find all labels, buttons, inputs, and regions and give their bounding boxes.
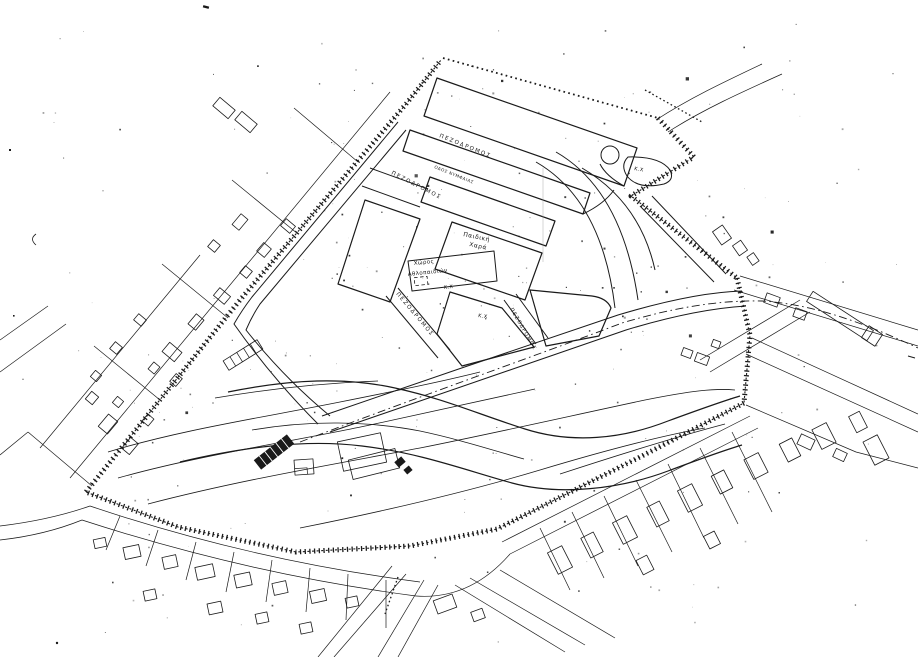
building-footprint [232, 214, 248, 231]
noise-speck [613, 287, 615, 289]
noise-speck [564, 196, 566, 198]
noise-speck [310, 355, 311, 356]
noise-speck [666, 430, 667, 431]
noise-speck [566, 287, 567, 288]
noise-speck [188, 547, 189, 548]
noise-speck [585, 197, 586, 198]
roundabout-circle [601, 146, 619, 164]
noise-speck [133, 600, 135, 602]
noise-speck [695, 378, 696, 379]
noise-speck [743, 47, 745, 49]
noise-speck [624, 317, 626, 319]
noise-speck [602, 287, 604, 289]
building-footprint [849, 411, 868, 432]
noise-speck [492, 92, 494, 94]
noise-speck [112, 582, 114, 584]
open-space-label-sports: Κ.Χ [444, 284, 454, 291]
noise-speck [645, 438, 646, 439]
noise-speck [429, 289, 430, 290]
building-footprint [213, 97, 235, 118]
noise-speck [498, 641, 499, 642]
building-footprint [110, 342, 123, 355]
noise-speck [765, 198, 766, 199]
existing-fabric-west [0, 92, 390, 486]
noise-speck [464, 512, 465, 513]
plan-map-svg: ΠΕΖΟΔΡΟΜΟΣ ΟΔΟΣ ΝΥΜΦΑΙΑΣ ΠΕΖΟΔΡΟΜΟΣ ΠΕΖΟ… [0, 0, 918, 657]
curved-street-edge [536, 162, 615, 308]
noise-speck [461, 254, 463, 256]
building-footprint [188, 314, 204, 330]
noise-speck [896, 264, 897, 265]
noise-speck [578, 590, 580, 592]
noise-speck [614, 256, 615, 257]
noise-speck [101, 357, 102, 358]
noise-speck [526, 282, 527, 283]
noise-speck [622, 316, 624, 318]
building-footprint [681, 348, 693, 359]
building-footprint [433, 594, 457, 614]
noise-speck [83, 31, 84, 32]
noise-speck [454, 233, 455, 234]
noise-speck [423, 134, 425, 136]
noise-speck [514, 305, 515, 306]
building-footprint [712, 225, 731, 245]
noise-speck [147, 499, 149, 501]
noise-speck [213, 74, 214, 75]
building-footprint [807, 291, 874, 340]
noise-speck [643, 335, 644, 336]
noise-speck [149, 534, 150, 535]
noise-speck [535, 390, 536, 391]
noise-speck [782, 89, 783, 90]
road-line [94, 346, 160, 400]
noise-speck [650, 587, 651, 588]
noise-speck [231, 528, 232, 529]
road-line [500, 570, 615, 638]
noise-speck [167, 617, 168, 618]
noise-speck [641, 291, 642, 292]
street-label-pezodromos-3: ΠΕΖΟΔΡΟΜΟΣ [394, 291, 434, 338]
boundary-ticks-west [86, 60, 441, 492]
building-footprint [863, 435, 889, 465]
street-connector [583, 190, 614, 214]
building-footprint [647, 501, 669, 527]
noise-speck [396, 451, 397, 452]
noise-speck [718, 587, 720, 589]
noise-speck [693, 584, 694, 585]
noise-speck [518, 235, 520, 237]
noise-speck [459, 99, 460, 100]
building-footprint [345, 596, 359, 608]
noise-speck [381, 212, 382, 213]
noise-speck [530, 217, 531, 218]
building-footprints-east [547, 225, 889, 575]
noise-speck [337, 273, 338, 274]
lot-line [604, 496, 638, 566]
building-footprint [162, 342, 182, 361]
building-footprint [711, 470, 733, 494]
building-footprint [208, 240, 221, 253]
building-footprints-south [93, 537, 485, 634]
building-footprint [793, 308, 807, 321]
block-outline [403, 130, 590, 214]
building-footprint [235, 111, 257, 132]
noise-speck [339, 267, 340, 268]
noise-speck [355, 69, 357, 71]
road-line [162, 264, 228, 318]
noise-speck [266, 172, 268, 174]
noise-speck [250, 369, 251, 370]
noise-speck [159, 412, 160, 413]
noise-speck [617, 402, 619, 404]
noise-speck [148, 547, 150, 549]
noise-speck [105, 632, 106, 633]
noise-speck [858, 169, 859, 170]
noise-speck [336, 364, 337, 365]
noise-speck [427, 372, 428, 373]
noise-speck [354, 90, 355, 91]
noise-speck [336, 242, 338, 244]
noise-speck [686, 77, 689, 80]
noise-speck [185, 411, 188, 414]
road-line [470, 578, 585, 645]
noise-speck [745, 390, 746, 391]
noise-speck [482, 88, 483, 89]
noise-speck [825, 262, 826, 263]
building-footprint [711, 339, 721, 348]
noise-speck [448, 278, 449, 279]
noise-speck [417, 192, 419, 194]
noise-speck [407, 296, 408, 297]
noise-speck [781, 412, 782, 413]
noise-speck [709, 196, 711, 198]
noise-speck [234, 129, 235, 130]
noise-speck [773, 264, 774, 265]
inner-buildings [254, 433, 413, 480]
noise-speck [598, 141, 599, 142]
noise-speck [336, 391, 337, 392]
noise-speck [471, 66, 472, 67]
noise-speck [633, 93, 634, 94]
noise-speck [526, 268, 527, 269]
building-footprint [703, 531, 720, 549]
noise-speck [317, 424, 318, 425]
noise-speck [443, 307, 445, 309]
noise-speck [271, 371, 272, 372]
lot-line [226, 552, 234, 592]
stair-rungs [230, 344, 256, 366]
noise-speck [348, 121, 349, 122]
noise-speck [876, 345, 878, 347]
lot-line [186, 542, 196, 580]
noise-speck [134, 500, 136, 502]
road-line [294, 108, 358, 162]
noise-speck [321, 43, 323, 45]
lot-line [668, 464, 704, 538]
building-footprint [861, 326, 882, 346]
noise-speck [428, 283, 430, 285]
noise-speck [399, 347, 401, 349]
main-road-edge [322, 291, 742, 416]
building-footprint [636, 555, 654, 575]
noise-speck [638, 553, 640, 555]
building-footprint [471, 608, 486, 622]
noise-speck [692, 607, 693, 608]
road-line [0, 506, 90, 526]
street-label-pezodromos-4: ΠΕΖΟΔΡΟΜΟΣ [508, 307, 537, 352]
noise-speck [636, 273, 637, 274]
noise-speck [893, 73, 894, 74]
block-outline [338, 200, 420, 302]
noise-speck [422, 58, 424, 60]
noise-speck [148, 354, 149, 355]
noise-speck [538, 112, 540, 114]
noise-speck [744, 188, 745, 189]
stray-mark [56, 642, 58, 644]
road-line [0, 520, 82, 540]
boundary-dotted-northeast [443, 58, 658, 118]
noise-speck [164, 419, 166, 421]
building-divisions [259, 439, 288, 466]
noise-speck [842, 281, 844, 283]
noise-speck [804, 366, 805, 367]
noise-speck [367, 267, 368, 268]
noise-speck [416, 419, 417, 420]
noise-speck [241, 624, 242, 625]
building-footprint [797, 434, 815, 450]
noise-speck [55, 112, 56, 113]
road-line [668, 74, 782, 132]
noise-speck [212, 402, 213, 403]
building-footprint [162, 555, 178, 570]
street-edge [246, 130, 406, 416]
existing-fabric-south [0, 506, 615, 657]
noise-speck [642, 331, 643, 332]
noise-speck [651, 266, 652, 267]
road-line [510, 428, 758, 554]
noise-speck [730, 398, 731, 399]
building-footprint [732, 240, 747, 256]
noise-speck [180, 388, 181, 389]
noise-speck [549, 230, 550, 231]
stray-mark [33, 234, 37, 245]
noise-speck [789, 60, 790, 61]
noise-speck [275, 341, 276, 342]
noise-speck [22, 379, 23, 380]
noise-speck [331, 142, 332, 143]
noise-speck [476, 375, 477, 376]
building-footprint [85, 391, 98, 404]
stream-line [228, 381, 740, 438]
existing-fabric-east [502, 64, 918, 590]
noise-speck [190, 394, 192, 396]
building-footprint [403, 465, 412, 474]
noise-speck [434, 557, 436, 559]
noise-speck [162, 594, 164, 596]
street-edge [362, 186, 420, 207]
building-footprint [744, 453, 768, 480]
road-line [90, 506, 420, 582]
noise-speck [285, 355, 287, 357]
road-line [318, 566, 392, 657]
noise-speck [489, 304, 490, 305]
noise-speck [798, 354, 800, 356]
noise-speck [563, 53, 564, 54]
building-footprint [747, 253, 759, 266]
noise-speck [501, 80, 503, 82]
noise-speck [697, 180, 698, 181]
noise-speck [328, 511, 329, 512]
noise-speck [257, 65, 259, 67]
stray-mark [13, 315, 15, 317]
stray-mark [9, 149, 11, 151]
noise-speck [565, 138, 566, 139]
noise-speck [532, 343, 534, 345]
noise-speck [43, 112, 45, 114]
building-footprint [134, 314, 147, 327]
lot-line [146, 530, 158, 566]
building-footprint [143, 589, 157, 601]
small-building [294, 459, 314, 475]
noise-speck [290, 118, 291, 119]
noise-speck [164, 519, 165, 520]
sports-label-line2: Αθλοπαιδιών [407, 267, 447, 278]
dark-stepped-building [254, 434, 294, 469]
noise-speck [771, 231, 774, 234]
noise-speck [624, 188, 625, 189]
lot-line [346, 574, 348, 620]
noise-speck [307, 420, 308, 421]
noise-speck [746, 434, 747, 435]
noise-speck [723, 216, 725, 218]
noise-speck [794, 94, 795, 95]
noise-speck [629, 173, 630, 174]
road-line [734, 290, 918, 346]
noise-speck [485, 318, 486, 319]
noise-speck [464, 160, 465, 161]
building-footprint [677, 484, 702, 513]
sports-label-line1: Χώρος [413, 258, 434, 267]
building-footprint [234, 572, 252, 588]
noise-speck [581, 240, 583, 242]
noise-speck [119, 129, 121, 131]
noise-speck [272, 605, 274, 607]
noise-speck [354, 179, 355, 180]
noise-speck [153, 443, 154, 444]
noise-speck [580, 290, 581, 291]
road-line [28, 432, 92, 486]
noise-speck [183, 460, 184, 461]
building-footprint [812, 423, 836, 450]
noise-speck [493, 339, 494, 340]
noise-speck [643, 573, 644, 574]
noise-speck [724, 233, 725, 234]
noise-speck [564, 521, 566, 523]
building-footprint [195, 564, 215, 580]
road-line [752, 338, 918, 414]
noise-speck [188, 370, 189, 371]
building-footprint [394, 456, 405, 467]
noise-speck [183, 361, 184, 362]
noise-speck [800, 116, 801, 117]
noise-speck [779, 492, 781, 494]
building-footprint [272, 581, 288, 596]
road-line [0, 324, 66, 372]
noise-speck [362, 309, 364, 311]
building-footprint [581, 532, 603, 558]
noise-speck [415, 174, 418, 177]
noise-speck [594, 193, 595, 194]
noise-speck [646, 318, 648, 320]
noise-speck [314, 412, 316, 414]
open-space-label-central: Κ.Χ [478, 313, 488, 320]
noise-speck [416, 426, 417, 427]
noise-speck [796, 24, 797, 25]
noise-speck [335, 181, 337, 183]
playground-label-line2: Χαρά [469, 241, 488, 252]
noise-speck [522, 282, 523, 283]
scan-artifacts [9, 5, 915, 644]
noise-speck [498, 30, 499, 31]
road-line [0, 306, 48, 340]
noise-speck [709, 104, 710, 105]
noise-speck [604, 123, 606, 125]
noise-speck [334, 144, 335, 145]
noise-speck [769, 276, 771, 278]
noise-speck [593, 490, 595, 492]
building-footprint [112, 396, 123, 407]
noise-speck [349, 238, 350, 239]
noise-speck [54, 122, 55, 123]
road-line [746, 405, 918, 468]
noise-speck [332, 278, 333, 279]
road-line [710, 312, 810, 372]
noise-speck [431, 370, 433, 372]
noise-speck [349, 255, 351, 257]
lot-line [266, 560, 272, 602]
building-footprint [309, 589, 326, 604]
plan-boundary [86, 58, 750, 552]
building-footprints-west [85, 97, 295, 454]
noise-speck [589, 330, 590, 331]
noise-speck [245, 523, 246, 524]
noise-speck [286, 352, 287, 353]
road-line [0, 432, 28, 455]
noise-speck [139, 436, 140, 437]
noise-speck [756, 285, 758, 287]
noise-speck [494, 297, 496, 299]
noise-speck [496, 453, 497, 454]
noise-speck [483, 288, 485, 290]
noise-speck [355, 448, 356, 449]
noise-speck [130, 390, 131, 391]
noise-speck [464, 499, 465, 500]
noise-speck [332, 412, 333, 413]
noise-speck [152, 442, 154, 444]
noise-speck [103, 190, 104, 191]
noise-speck [619, 549, 621, 551]
noise-speck [694, 622, 696, 624]
street-edge [234, 122, 398, 424]
noise-speck [381, 473, 382, 474]
road-line [656, 64, 762, 120]
planned-layout [223, 78, 918, 442]
noise-speck [604, 248, 606, 250]
noise-speck [509, 336, 510, 337]
noise-speck [403, 246, 404, 247]
noise-speck [868, 444, 869, 445]
noise-speck [624, 97, 625, 98]
